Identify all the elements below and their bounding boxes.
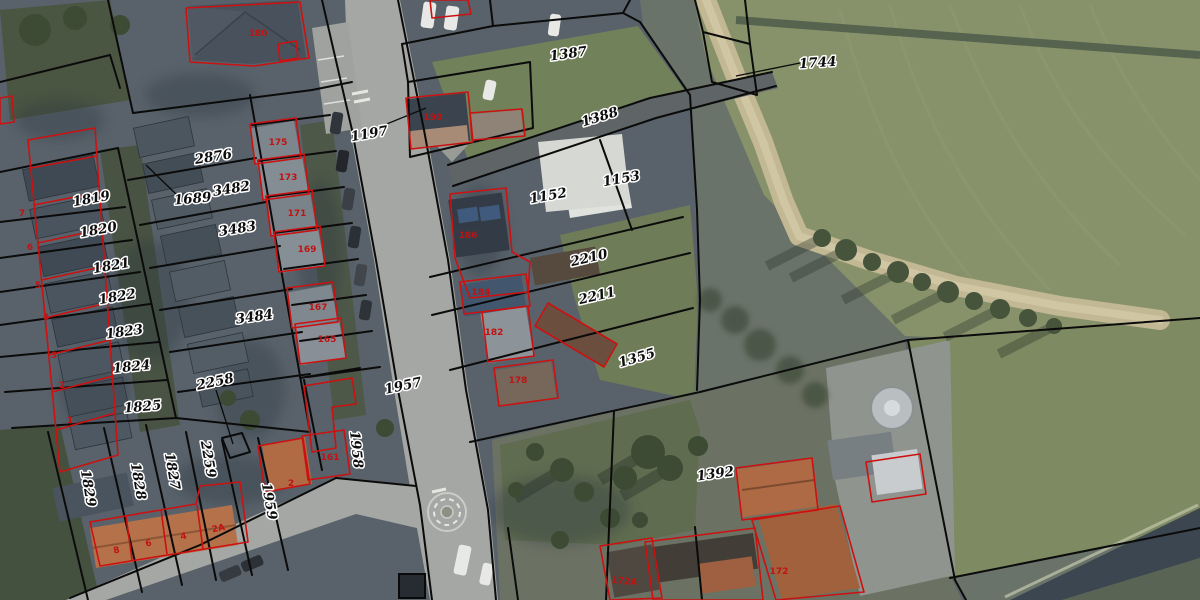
- large-building: [188, 0, 306, 64]
- shed: [399, 574, 425, 598]
- house-number-172: 172: [770, 567, 789, 577]
- parcel-label-1825: 1825: [123, 397, 162, 416]
- roundabout: [428, 493, 466, 531]
- house-number-2: 2: [59, 381, 65, 391]
- house-number-173: 173: [279, 173, 298, 183]
- house-number-161: 161: [321, 453, 340, 463]
- house-number-186: 186: [459, 231, 478, 241]
- house-number-182: 182: [485, 328, 504, 338]
- house-number-178: 178: [509, 376, 528, 386]
- house-number-190: 190: [424, 113, 443, 123]
- house-number-6: 6: [27, 243, 33, 253]
- parcel-label-1689: 1689: [173, 189, 212, 208]
- cadastral-map-svg: 1819182018211822182318241825182918281827…: [0, 0, 1200, 600]
- parcel-label-1744: 1744: [798, 54, 837, 73]
- house-number-184: 184: [472, 288, 491, 298]
- house-number-180: 180: [249, 29, 268, 39]
- map-canvas[interactable]: 1819182018211822182318241825182918281827…: [0, 0, 1200, 600]
- house-number-175: 175: [269, 138, 288, 148]
- house-number-167: 167: [309, 303, 328, 313]
- house-number-2: 2: [288, 479, 294, 489]
- house-number-169: 169: [298, 245, 317, 255]
- house-number-165: 165: [318, 335, 337, 345]
- house-number-3: 3: [51, 351, 57, 361]
- house-number-171: 171: [288, 209, 307, 219]
- house-number-7: 7: [19, 209, 25, 219]
- house-number-4: 4: [43, 313, 49, 323]
- house-number-1: 1: [67, 416, 73, 426]
- house-number-5: 5: [35, 281, 41, 291]
